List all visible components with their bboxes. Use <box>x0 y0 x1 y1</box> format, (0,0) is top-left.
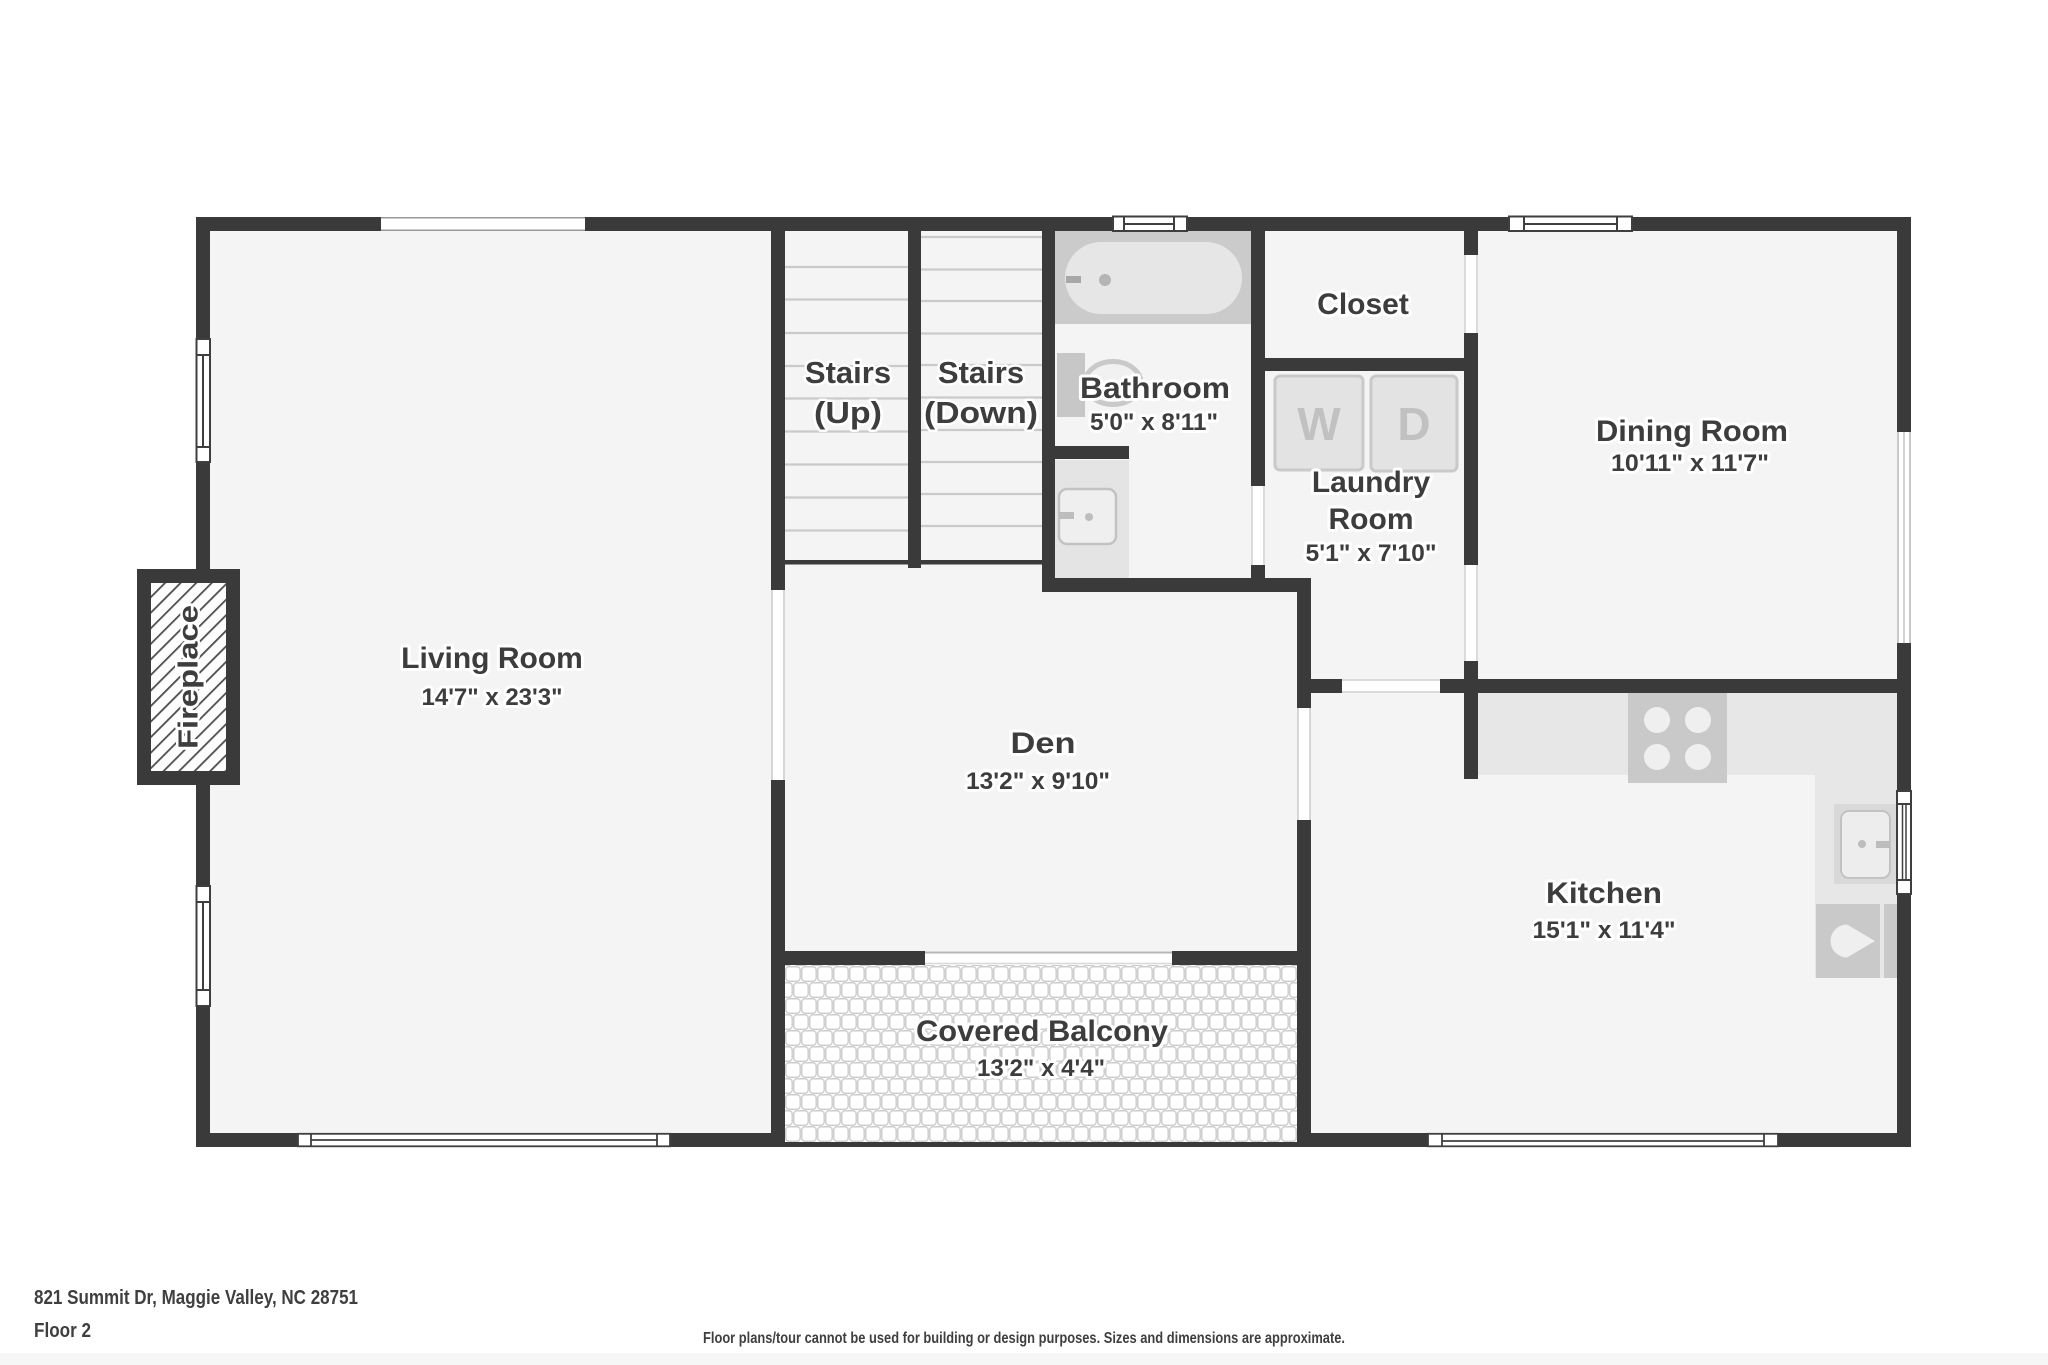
svg-text:Stairs: Stairs <box>938 355 1024 390</box>
svg-text:Laundry: Laundry <box>1312 466 1431 499</box>
svg-text:Closet: Closet <box>1317 288 1409 321</box>
svg-text:Stairs: Stairs <box>805 355 891 390</box>
svg-text:D: D <box>1397 398 1430 450</box>
svg-text:(Down): (Down) <box>924 395 1038 430</box>
svg-text:Floor 2: Floor 2 <box>34 1320 91 1342</box>
svg-text:14'7" x 23'3": 14'7" x 23'3" <box>422 684 563 711</box>
svg-text:13'2" x 4'4": 13'2" x 4'4" <box>977 1055 1105 1082</box>
svg-text:Kitchen: Kitchen <box>1546 877 1662 910</box>
svg-text:Fireplace: Fireplace <box>173 605 204 749</box>
svg-text:5'1" x 7'10": 5'1" x 7'10" <box>1306 540 1437 567</box>
svg-text:5'0" x 8'11": 5'0" x 8'11" <box>1090 409 1218 436</box>
svg-text:Living Room: Living Room <box>401 642 583 675</box>
svg-text:13'2" x 9'10": 13'2" x 9'10" <box>966 768 1110 795</box>
svg-text:821 Summit Dr, Maggie Valley,: 821 Summit Dr, Maggie Valley, NC 28751 <box>34 1287 358 1309</box>
svg-text:W: W <box>1297 398 1341 450</box>
svg-text:(Up): (Up) <box>814 395 882 430</box>
svg-text:Bathroom: Bathroom <box>1080 372 1230 405</box>
svg-text:Floor plans/tour cannot be use: Floor plans/tour cannot be used for buil… <box>703 1330 1345 1347</box>
svg-text:Den: Den <box>1011 727 1076 760</box>
svg-text:Covered Balcony: Covered Balcony <box>916 1015 1168 1048</box>
svg-text:Dining Room: Dining Room <box>1596 415 1788 448</box>
svg-text:Room: Room <box>1329 503 1414 536</box>
svg-text:15'1" x 11'4": 15'1" x 11'4" <box>1533 917 1676 944</box>
svg-text:10'11" x 11'7": 10'11" x 11'7" <box>1611 450 1769 477</box>
